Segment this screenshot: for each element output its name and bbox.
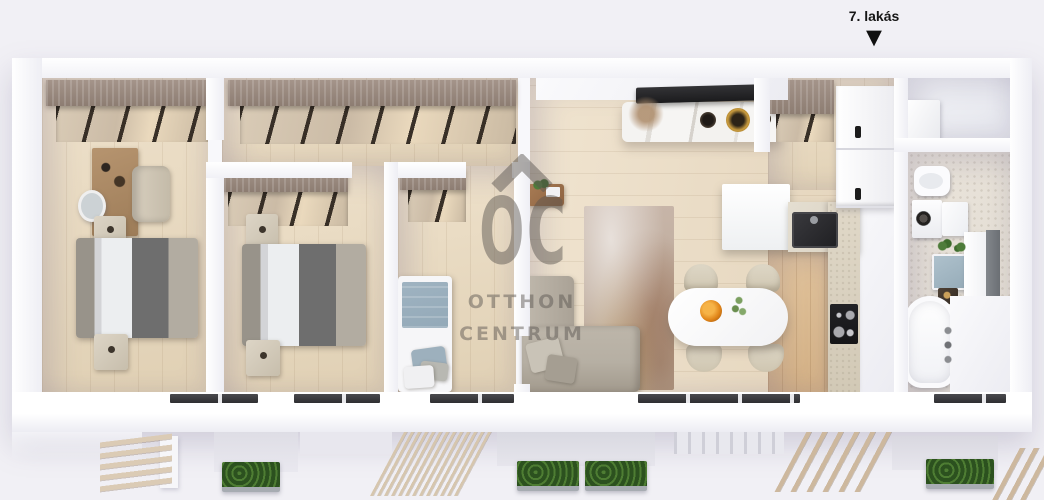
cabinet-divider (836, 148, 896, 150)
bedroom2-bed (242, 244, 366, 346)
nightstand (246, 340, 280, 376)
window-sliding-door (638, 394, 800, 403)
dried-plant-decor (628, 96, 664, 132)
dining-table (668, 288, 788, 346)
wall (206, 162, 352, 178)
toilet (914, 166, 950, 196)
bed-pillow-white (403, 365, 434, 389)
watermark-initials: OC (479, 192, 565, 273)
cabinet-handle (855, 126, 861, 138)
unit-marker-icon: ▼ (832, 24, 916, 51)
washing-machine (912, 200, 942, 238)
wall (206, 166, 224, 394)
terrace-vent-panel (674, 432, 784, 454)
watermark: OC OTTHON CENTRUM (448, 154, 596, 345)
hedge-planter (222, 462, 280, 492)
hedge-planter (926, 459, 994, 489)
outer-wall-top (12, 58, 1032, 78)
window (170, 394, 258, 403)
wall (206, 78, 224, 140)
corridor-wardrobe-doors (240, 106, 516, 144)
watermark-line1: OTTHON (448, 291, 596, 313)
outer-wall-left (12, 58, 42, 432)
outer-wall-bottom (12, 392, 1032, 432)
nightstand (94, 334, 128, 370)
tub-alcove-wall (950, 296, 1012, 392)
corridor-wardrobe-top (228, 80, 516, 106)
entry-wardrobe-doors (776, 114, 834, 142)
console-bowl-dark (700, 112, 716, 128)
bathroom-cabinet (942, 202, 968, 236)
bedroom1-bed (76, 238, 198, 338)
cooktop (830, 304, 858, 344)
outer-wall-right (1010, 58, 1032, 432)
wall (894, 138, 1012, 152)
fruit-bowl (700, 300, 722, 322)
table-plant (730, 292, 748, 320)
shelf-side-panel (986, 230, 1000, 300)
kitchen-cabinet (722, 184, 790, 250)
bedroom1-wardrobe-top (46, 80, 208, 106)
hedge-planter (517, 461, 579, 491)
wood-slat-screen (992, 448, 1044, 500)
window (934, 394, 1006, 403)
watermark-line2: CENTRUM (448, 323, 596, 345)
bedroom1-wardrobe-doors (56, 106, 208, 142)
wall (384, 162, 398, 394)
entry-cabinets (836, 86, 896, 208)
bathtub-faucet (942, 326, 954, 364)
desk-chair (132, 166, 170, 222)
window (294, 394, 380, 403)
wood-slat-screen (774, 426, 895, 492)
sofa-pillow (544, 354, 578, 384)
terrace-recess (300, 432, 392, 454)
bathroom-plant (954, 240, 968, 254)
hedge-planter (585, 461, 647, 491)
console-bowl-gold (726, 108, 750, 132)
wall (894, 58, 908, 394)
wood-slat-screen (100, 434, 172, 497)
faucet (810, 216, 818, 224)
window (430, 394, 514, 403)
cabinet-handle (855, 188, 861, 200)
utility-cabinet (906, 100, 940, 140)
bathroom-plant (936, 238, 952, 254)
bedroom3-duvet-blue (402, 282, 448, 328)
floorplan-canvas: 7. lakás ▼ (0, 0, 1044, 500)
